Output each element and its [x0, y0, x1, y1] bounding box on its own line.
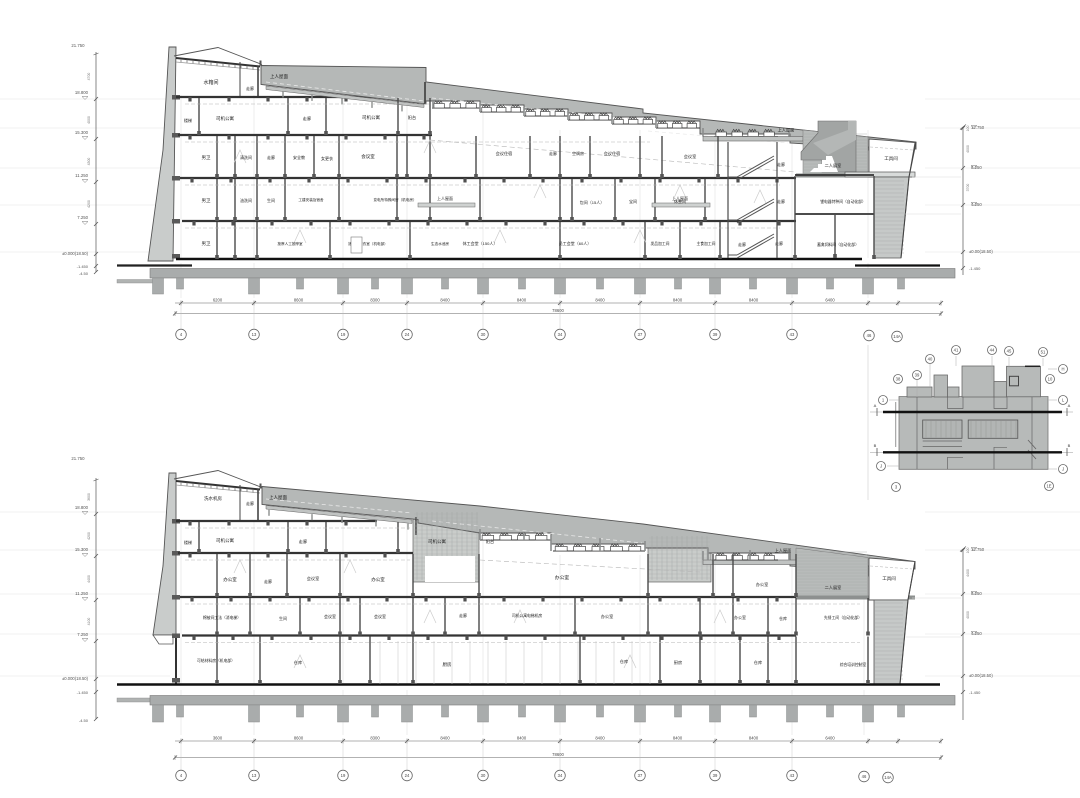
svg-text:男卫: 男卫 — [202, 241, 211, 247]
svg-text:43: 43 — [790, 332, 795, 337]
svg-text:安全教: 安全教 — [293, 154, 305, 160]
svg-text:会议室: 会议室 — [361, 153, 375, 160]
svg-text:司机公寓: 司机公寓 — [362, 114, 380, 121]
svg-text:-1.450: -1.450 — [969, 266, 981, 271]
svg-text:A: A — [874, 403, 877, 408]
svg-text:18.800: 18.800 — [75, 505, 89, 510]
svg-text:46: 46 — [862, 774, 867, 779]
svg-text:走廊: 走廊 — [549, 150, 557, 156]
svg-text:-1.450: -1.450 — [969, 690, 981, 695]
svg-text:厨房: 厨房 — [674, 659, 682, 666]
svg-text:15.300: 15.300 — [75, 130, 89, 135]
svg-text:仓库: 仓库 — [754, 659, 762, 666]
svg-text:厨房: 厨房 — [443, 661, 452, 668]
svg-text:100: 100 — [966, 126, 970, 132]
svg-text:8300: 8300 — [370, 736, 380, 741]
svg-text:会议室: 会议室 — [684, 153, 697, 160]
svg-text:司机公寓: 司机公寓 — [216, 537, 234, 544]
svg-text:上人屋面: 上人屋面 — [437, 195, 453, 201]
svg-text:会议住宿: 会议住宿 — [604, 150, 621, 157]
svg-text:走廊: 走廊 — [246, 500, 254, 506]
svg-text:走廊: 走廊 — [246, 85, 254, 91]
svg-text:43: 43 — [790, 773, 795, 778]
svg-text:楼梯: 楼梯 — [184, 117, 192, 123]
svg-text:14A: 14A — [893, 334, 901, 339]
svg-text:J: J — [1062, 467, 1064, 472]
svg-text:走廊: 走廊 — [775, 240, 783, 246]
svg-text:办公室: 办公室 — [756, 581, 769, 588]
svg-text:-1.450: -1.450 — [77, 264, 89, 269]
svg-text:二人展室: 二人展室 — [825, 584, 842, 591]
svg-text:油洗间: 油洗间 — [240, 197, 252, 203]
svg-text:24: 24 — [405, 773, 410, 778]
svg-text:11.250: 11.250 — [75, 591, 88, 596]
svg-text:6400: 6400 — [825, 298, 835, 303]
svg-text:4100: 4100 — [87, 618, 91, 626]
svg-text:45: 45 — [1007, 349, 1012, 354]
svg-text:走廊: 走廊 — [738, 241, 746, 247]
svg-text:走廊: 走廊 — [777, 198, 785, 204]
svg-text:锂电器特种间（自动化部）: 锂电器特种间（自动化部） — [820, 199, 866, 204]
svg-text:21.750: 21.750 — [71, 43, 85, 48]
svg-text:±0.00(18.50): ±0.00(18.50) — [969, 249, 993, 254]
svg-text:51: 51 — [1041, 350, 1046, 355]
svg-text:上人屋面: 上人屋面 — [778, 127, 795, 134]
svg-text:7.250: 7.250 — [77, 215, 88, 220]
svg-text:4000: 4000 — [966, 145, 970, 153]
svg-text:仓库: 仓库 — [620, 658, 628, 665]
svg-text:8400: 8400 — [440, 736, 450, 741]
svg-text:办公室: 办公室 — [601, 613, 614, 620]
svg-text:休工会堂（150人）: 休工会堂（150人） — [463, 240, 498, 246]
svg-text:4400: 4400 — [966, 569, 970, 577]
svg-text:司机公寓电梯机房: 司机公寓电梯机房 — [512, 613, 543, 618]
svg-text:楼梯: 楼梯 — [184, 539, 192, 545]
svg-text:办公室: 办公室 — [734, 614, 746, 620]
svg-text:11.250: 11.250 — [75, 173, 88, 178]
svg-text:78600: 78600 — [552, 752, 564, 757]
svg-text:走廊: 走廊 — [264, 578, 272, 584]
svg-text:仓库: 仓库 — [294, 659, 302, 666]
svg-text:工建安装及宿舍: 工建安装及宿舍 — [298, 197, 324, 202]
svg-text:3600: 3600 — [87, 493, 91, 501]
svg-text:1E: 1E — [1046, 484, 1051, 489]
svg-text:男卫: 男卫 — [202, 198, 211, 204]
svg-text:空调房: 空调房 — [572, 150, 584, 156]
svg-text:会议室: 会议室 — [374, 613, 386, 619]
svg-text:发品加工间: 发品加工间 — [651, 241, 670, 246]
svg-text:洗水机房: 洗水机房 — [204, 495, 222, 502]
svg-text:8400: 8400 — [595, 736, 605, 741]
svg-text:L: L — [1062, 398, 1065, 403]
svg-text:8400: 8400 — [517, 298, 527, 303]
svg-text:37: 37 — [638, 773, 643, 778]
svg-text:±0.000(18.50): ±0.000(18.50) — [62, 676, 89, 681]
svg-text:34: 34 — [558, 332, 563, 337]
svg-text:3600: 3600 — [213, 736, 223, 741]
svg-text:会议住宿: 会议住宿 — [496, 150, 513, 157]
svg-text:18.800: 18.800 — [75, 90, 89, 95]
svg-text:40: 40 — [928, 357, 933, 362]
svg-text:走廊: 走廊 — [267, 154, 275, 160]
svg-text:女更衣: 女更衣 — [321, 155, 333, 161]
svg-text:4200: 4200 — [87, 532, 91, 540]
svg-text:A: A — [1068, 403, 1071, 408]
svg-text:生间: 生间 — [279, 615, 287, 621]
svg-text:按摩人工按摩室: 按摩人工按摩室 — [277, 241, 303, 246]
svg-text:8400: 8400 — [749, 298, 759, 303]
svg-text:39: 39 — [915, 373, 920, 378]
svg-text:上人屋面: 上人屋面 — [269, 494, 287, 501]
svg-text:6400: 6400 — [825, 736, 835, 741]
svg-text:生态水池房: 生态水池房 — [431, 241, 449, 246]
svg-text:8400: 8400 — [595, 298, 605, 303]
svg-text:4300: 4300 — [87, 158, 91, 166]
svg-text:走廊: 走廊 — [777, 161, 785, 167]
svg-text:会议室: 会议室 — [307, 575, 320, 582]
svg-text:19: 19 — [341, 332, 346, 337]
svg-text:13: 13 — [252, 773, 257, 778]
svg-text:4200: 4200 — [87, 200, 91, 208]
svg-text:B: B — [1068, 443, 1071, 448]
svg-text:-4.50: -4.50 — [79, 271, 89, 276]
svg-text:38: 38 — [896, 377, 901, 382]
svg-text:4400: 4400 — [87, 575, 91, 583]
svg-text:44: 44 — [990, 348, 995, 353]
svg-text:8600: 8600 — [294, 298, 304, 303]
svg-text:8600: 8600 — [294, 736, 304, 741]
svg-text:上人屋面: 上人屋面 — [270, 73, 288, 80]
svg-text:办公室: 办公室 — [371, 576, 385, 583]
svg-text:3700: 3700 — [966, 184, 970, 192]
svg-text:会议室: 会议室 — [324, 613, 336, 619]
svg-text:1: 1 — [882, 398, 885, 403]
svg-text:±0.000(18.50): ±0.000(18.50) — [62, 251, 89, 256]
svg-text:30: 30 — [481, 773, 486, 778]
svg-text:男卫: 男卫 — [202, 155, 211, 161]
svg-text:15.300: 15.300 — [75, 547, 89, 552]
svg-text:78600: 78600 — [552, 308, 564, 313]
svg-text:上人屋面: 上人屋面 — [775, 547, 792, 554]
svg-text:8300: 8300 — [370, 298, 380, 303]
svg-text:可结材料房（机电部）: 可结材料房（机电部） — [197, 658, 235, 663]
svg-text:J: J — [880, 464, 882, 469]
svg-text:-4.50: -4.50 — [79, 718, 89, 723]
svg-text:变电所特殊间房（机电房）: 变电所特殊间房（机电房） — [373, 197, 416, 202]
svg-text:生间: 生间 — [267, 197, 275, 203]
svg-text:4000: 4000 — [87, 116, 91, 124]
svg-text:24: 24 — [405, 332, 410, 337]
svg-text:先餐工间（自动化部）: 先餐工间（自动化部） — [824, 615, 862, 620]
svg-text:13: 13 — [252, 332, 257, 337]
svg-text:4700: 4700 — [87, 73, 91, 81]
svg-text:30: 30 — [481, 332, 486, 337]
svg-text:4: 4 — [180, 332, 183, 337]
svg-text:司机公寓: 司机公寓 — [216, 115, 234, 122]
svg-text:工具间: 工具间 — [882, 575, 896, 582]
svg-text:办公室: 办公室 — [555, 574, 570, 581]
svg-text:司机公寓: 司机公寓 — [428, 538, 446, 545]
svg-text:棉被间工法（消电梯）: 棉被间工法（消电梯） — [203, 615, 241, 620]
svg-text:水箱间: 水箱间 — [203, 79, 218, 86]
svg-text:39: 39 — [713, 332, 718, 337]
svg-text:100: 100 — [966, 548, 970, 554]
svg-text:14A: 14A — [884, 775, 892, 780]
svg-text:B: B — [874, 443, 877, 448]
svg-text:走廊: 走廊 — [303, 115, 311, 122]
svg-text:走廊: 走廊 — [459, 612, 467, 618]
svg-text:41: 41 — [954, 348, 959, 353]
svg-text:34: 34 — [558, 773, 563, 778]
svg-text:仓库: 仓库 — [779, 615, 787, 621]
svg-text:综合培训控制室: 综合培训控制室 — [840, 662, 867, 667]
svg-text:蓄禽饲料间（自动化部）: 蓄禽饲料间（自动化部） — [817, 242, 859, 247]
svg-text:8400: 8400 — [440, 298, 450, 303]
svg-text:H: H — [1061, 367, 1064, 372]
svg-text:8400: 8400 — [517, 736, 527, 741]
svg-text:46: 46 — [867, 333, 872, 338]
svg-text:10: 10 — [1048, 377, 1053, 382]
svg-text:主食加工间: 主食加工间 — [697, 241, 716, 246]
svg-text:二人展室: 二人展室 — [825, 162, 842, 169]
svg-text:清洗间: 清洗间 — [240, 154, 252, 160]
svg-text:-1.450: -1.450 — [77, 690, 89, 695]
svg-text:工具间: 工具间 — [884, 155, 898, 162]
svg-text:包间（15人）: 包间（15人） — [580, 199, 604, 205]
svg-text:走廊: 走廊 — [299, 538, 307, 545]
svg-text:37: 37 — [638, 332, 643, 337]
svg-text:休整间: 休整间 — [674, 198, 686, 204]
svg-text:±0.00(18.50): ±0.00(18.50) — [969, 673, 993, 678]
svg-text:员工会堂（60人）: 员工会堂（60人） — [559, 240, 591, 246]
svg-text:8400: 8400 — [673, 298, 683, 303]
svg-text:宝间: 宝间 — [629, 198, 637, 204]
svg-text:3: 3 — [895, 485, 898, 490]
svg-text:7.250: 7.250 — [77, 632, 88, 637]
svg-text:办公室: 办公室 — [223, 576, 237, 583]
svg-text:8400: 8400 — [749, 736, 759, 741]
svg-text:阳台: 阳台 — [408, 114, 416, 121]
svg-text:4000: 4000 — [966, 611, 970, 619]
svg-text:19: 19 — [341, 773, 346, 778]
svg-text:阳台: 阳台 — [486, 538, 494, 545]
svg-text:21.750: 21.750 — [71, 456, 85, 461]
svg-text:8400: 8400 — [673, 736, 683, 741]
svg-text:6200: 6200 — [213, 298, 223, 303]
svg-text:4: 4 — [180, 773, 183, 778]
svg-text:39: 39 — [713, 773, 718, 778]
